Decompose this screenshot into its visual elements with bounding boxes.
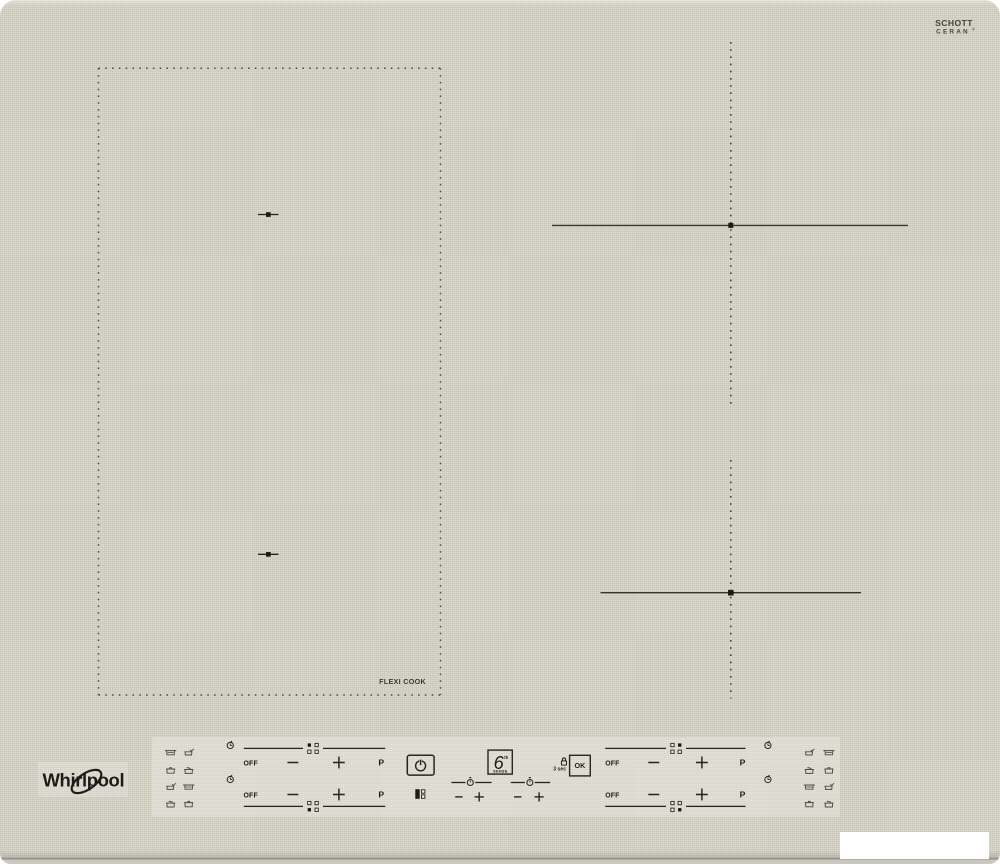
- svg-text:OFF: OFF: [605, 792, 619, 799]
- svg-text:OFF: OFF: [244, 760, 258, 767]
- svg-text:P: P: [378, 789, 384, 799]
- svg-text:th: th: [504, 755, 508, 760]
- svg-text:P: P: [378, 757, 384, 767]
- svg-text:Whirlpool: Whirlpool: [43, 770, 125, 791]
- svg-text:P: P: [740, 789, 746, 799]
- svg-text:P: P: [740, 757, 746, 767]
- svg-text:SCHOTT: SCHOTT: [935, 18, 973, 28]
- svg-text:SENSE: SENSE: [493, 769, 508, 773]
- svg-text:OFF: OFF: [244, 792, 258, 799]
- svg-text:®: ®: [972, 27, 975, 32]
- svg-text:FLEXI COOK: FLEXI COOK: [379, 677, 426, 686]
- svg-text:CERAN: CERAN: [936, 29, 970, 36]
- svg-text:3 sec: 3 sec: [553, 766, 566, 772]
- svg-text:OK: OK: [575, 761, 587, 770]
- svg-text:OFF: OFF: [605, 760, 619, 767]
